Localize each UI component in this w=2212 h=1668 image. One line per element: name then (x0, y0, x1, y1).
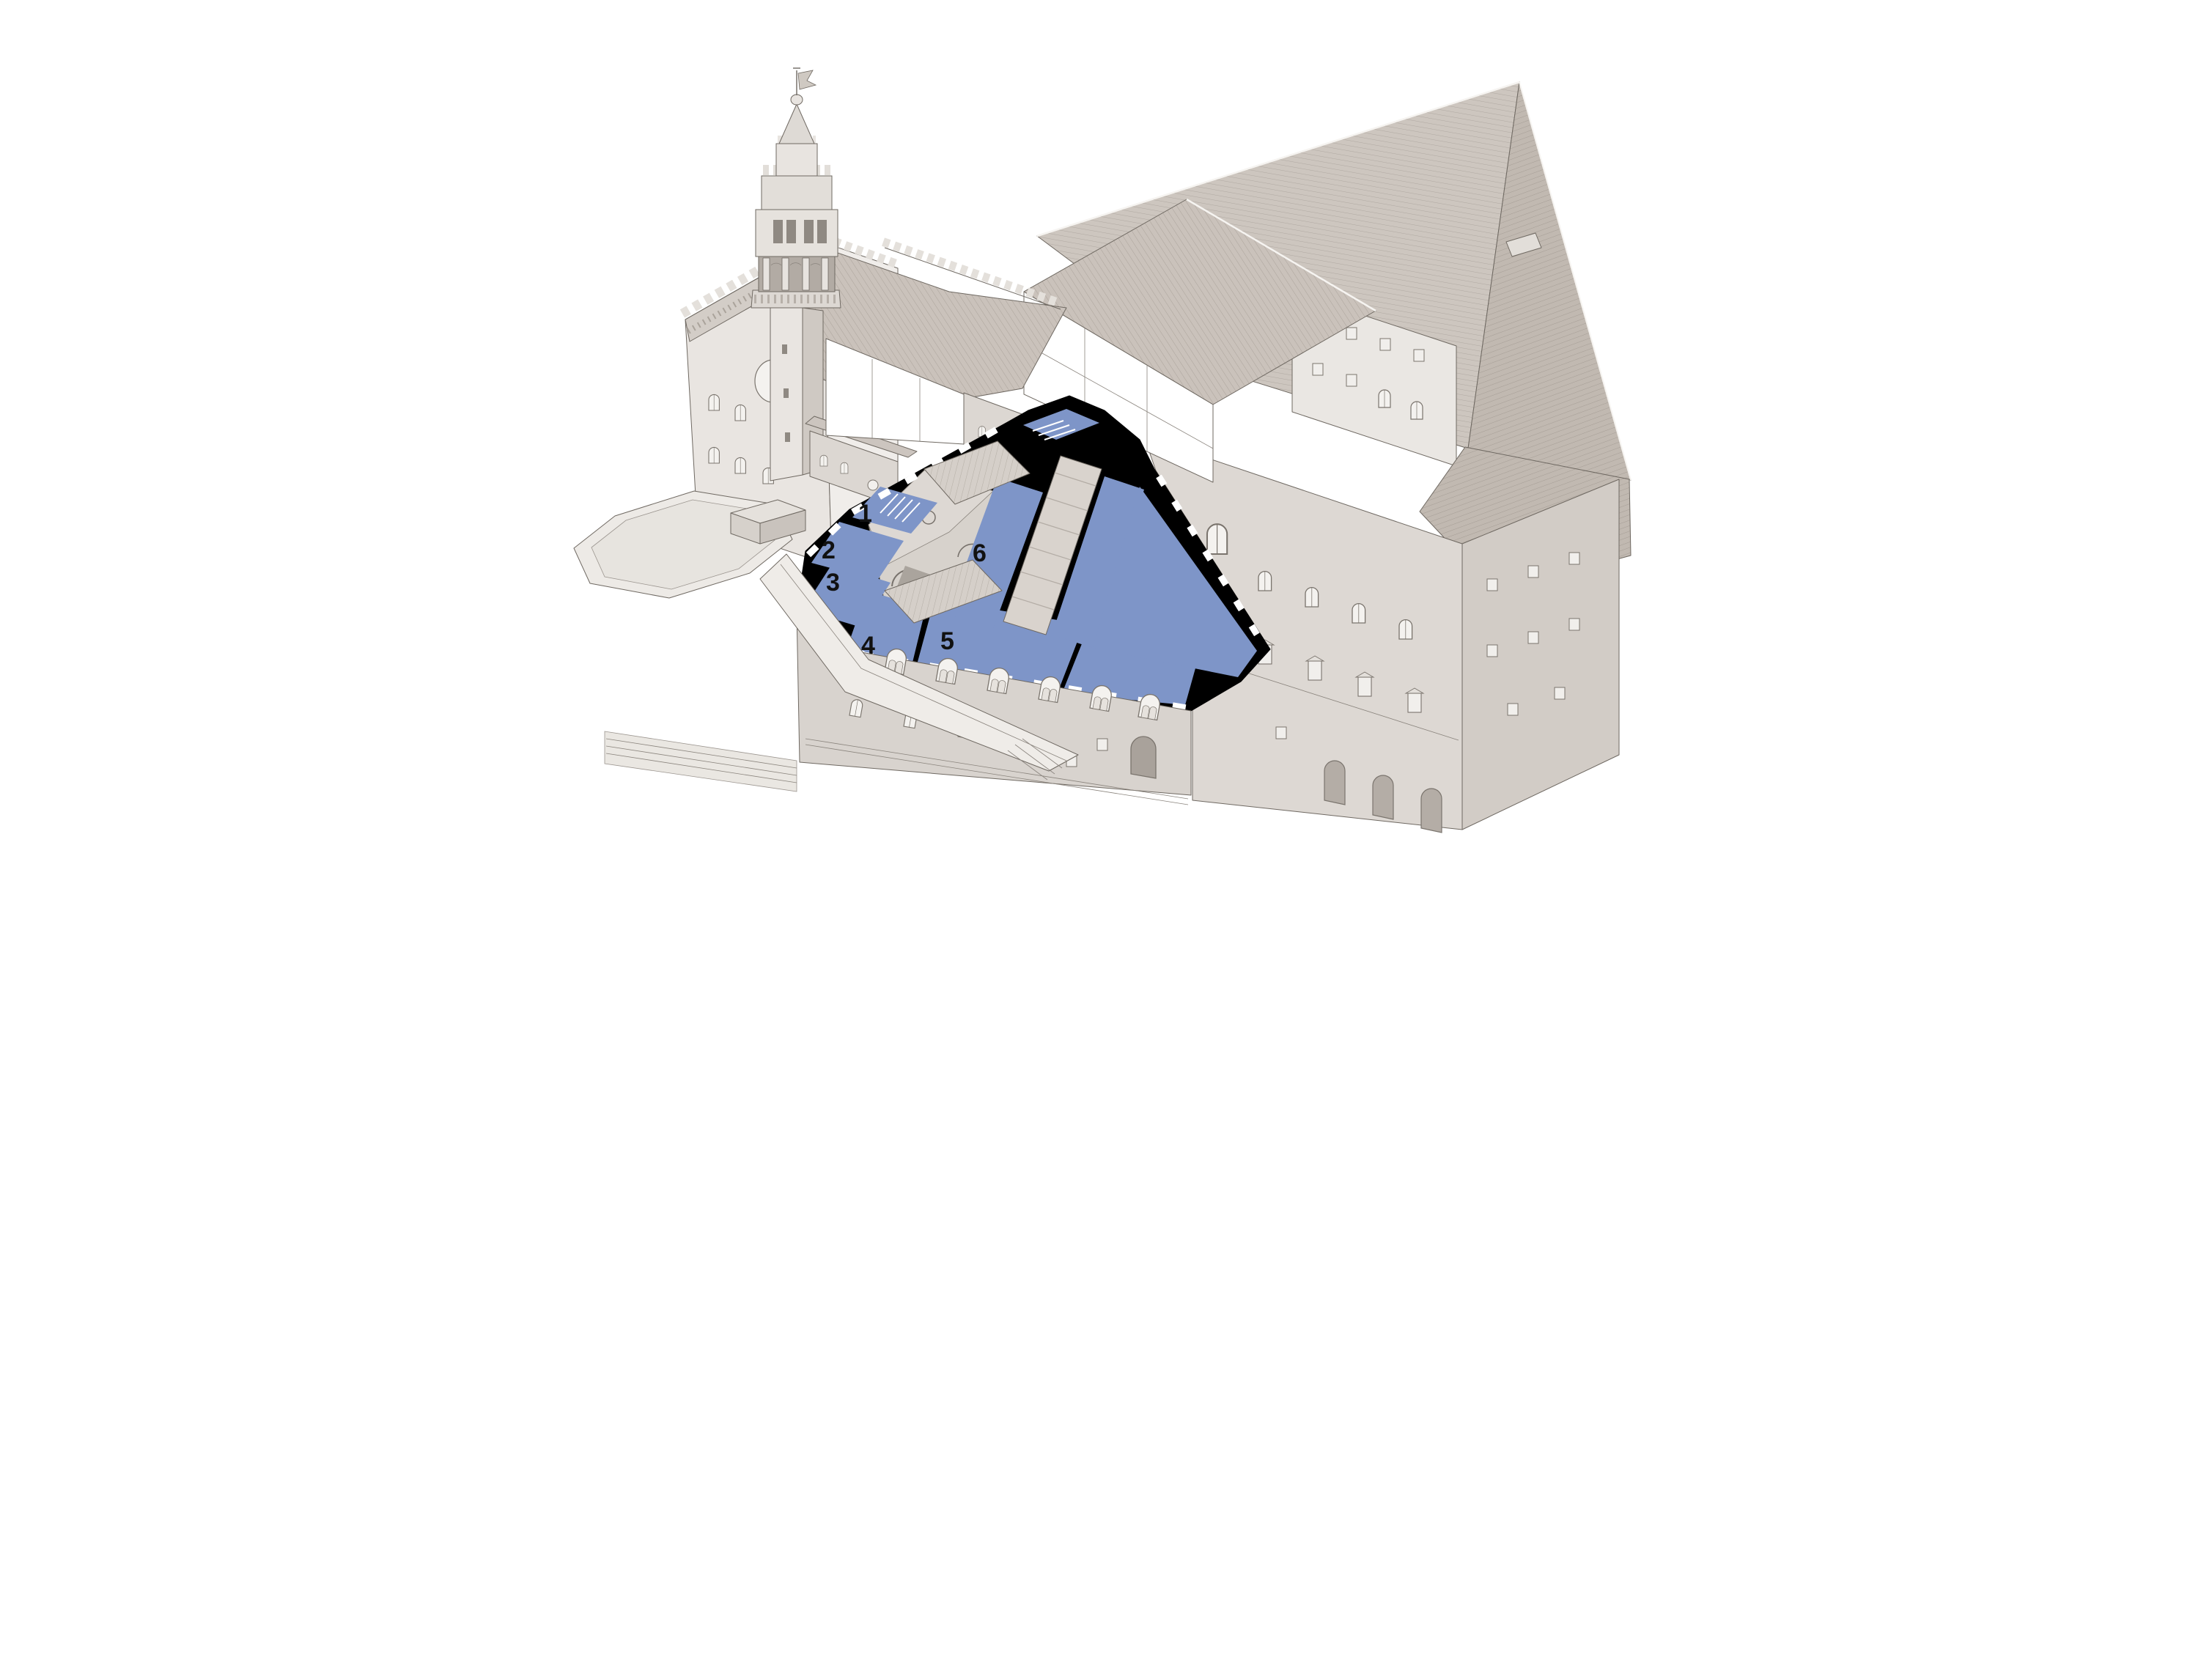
window-icon (1528, 566, 1538, 577)
oculus-icon (868, 480, 878, 490)
arched-window-icon (1305, 588, 1319, 607)
pediment-window-icon (1406, 688, 1423, 712)
room-label-5: 5 (940, 627, 954, 655)
room-label-2: 2 (822, 536, 836, 564)
window-icon (1346, 374, 1357, 386)
window-icon (1276, 727, 1286, 739)
room-label-3: 3 (826, 569, 840, 597)
window-icon (1555, 687, 1565, 699)
window-icon (1487, 579, 1497, 591)
window-icon (1414, 350, 1424, 361)
main-portal-icon (1131, 737, 1156, 778)
arched-window-icon (735, 457, 745, 473)
arched-window-icon (841, 462, 848, 473)
portal-door-icon (1324, 761, 1345, 805)
window-icon (1380, 339, 1390, 350)
tower-window-icon (785, 432, 790, 442)
tower-window-icon (786, 220, 796, 243)
belfry-column (803, 258, 809, 290)
tower-window-icon (817, 220, 827, 243)
belfry-column (763, 258, 770, 290)
tower-window-icon (804, 220, 814, 243)
tower-crown-block (762, 176, 832, 210)
window-icon (1569, 553, 1579, 564)
window-icon (1508, 704, 1518, 715)
window-icon (1528, 632, 1538, 643)
arched-window-icon (709, 394, 719, 410)
belfry-column (822, 258, 828, 290)
tower-spire-cone (779, 104, 814, 144)
broad-stair (605, 731, 797, 791)
arched-window-icon (1352, 604, 1365, 623)
lion-weathervane-icon (798, 70, 816, 89)
spire-ball-finial (791, 95, 803, 105)
portal-door-icon (1421, 789, 1442, 833)
arched-window-icon (1258, 572, 1272, 591)
pediment-window-icon (1306, 656, 1324, 680)
portal-door-icon (1373, 775, 1393, 819)
tower-lantern (776, 144, 817, 176)
arched-window-icon (1399, 620, 1412, 639)
arched-window-icon (1207, 524, 1227, 554)
arched-window-icon (709, 447, 719, 463)
arched-window-icon (1379, 390, 1390, 407)
window-icon (1313, 364, 1323, 375)
arched-window-icon (735, 405, 745, 421)
tower-window-icon (784, 388, 789, 398)
window-icon (1569, 619, 1579, 630)
drawing-canvas: 1 2 3 4 5 6 (553, 0, 1659, 834)
room-label-6: 6 (973, 539, 987, 567)
window-icon (1097, 739, 1107, 750)
belfry-column (782, 258, 789, 290)
window-icon (1346, 328, 1357, 339)
tower-window-icon (782, 344, 787, 354)
tower-window-icon (773, 220, 783, 243)
pediment-window-icon (1356, 672, 1374, 696)
window-icon (1487, 645, 1497, 657)
room-label-1: 1 (858, 500, 872, 528)
axonometric-cutaway-drawing: 1 2 3 4 5 6 (553, 0, 1659, 834)
arched-window-icon (820, 455, 827, 466)
arched-window-icon (1411, 402, 1423, 419)
